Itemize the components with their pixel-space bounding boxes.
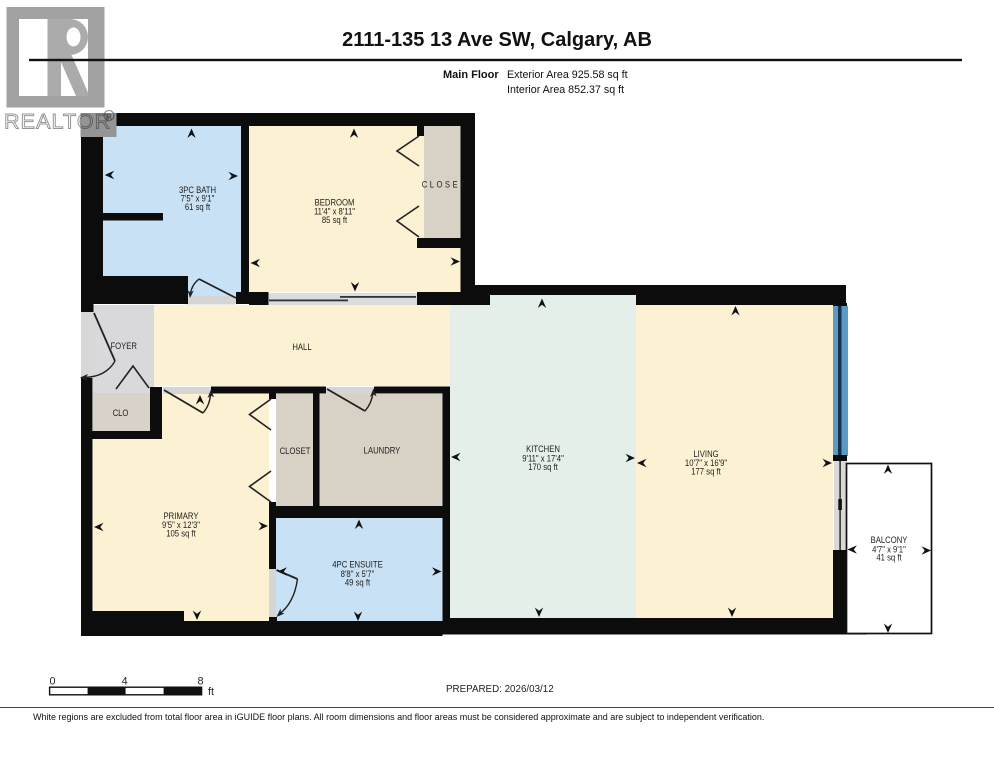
svg-text:170 sq ft: 170 sq ft [528, 461, 558, 472]
svg-text:49 sq ft: 49 sq ft [345, 577, 371, 588]
svg-text:ft: ft [208, 686, 214, 698]
svg-text:FOYER: FOYER [110, 340, 137, 351]
svg-text:105 sq ft: 105 sq ft [166, 528, 196, 539]
svg-text:8: 8 [197, 676, 203, 688]
svg-text:4: 4 [122, 676, 128, 688]
svg-text:177 sq ft: 177 sq ft [691, 466, 721, 477]
svg-text:R: R [106, 112, 112, 121]
svg-text:CLOSET: CLOSET [422, 179, 468, 190]
svg-text:0: 0 [49, 676, 55, 688]
svg-text:LAUNDRY: LAUNDRY [364, 445, 401, 456]
svg-text:CLO: CLO [113, 407, 129, 418]
svg-text:REALTOR: REALTOR [4, 110, 111, 134]
svg-text:CLOSET: CLOSET [280, 445, 311, 456]
svg-text:HALL: HALL [292, 341, 311, 352]
svg-text:41 sq ft: 41 sq ft [876, 552, 902, 563]
svg-text:85 sq ft: 85 sq ft [322, 214, 348, 225]
svg-text:61 sq ft: 61 sq ft [185, 201, 211, 212]
